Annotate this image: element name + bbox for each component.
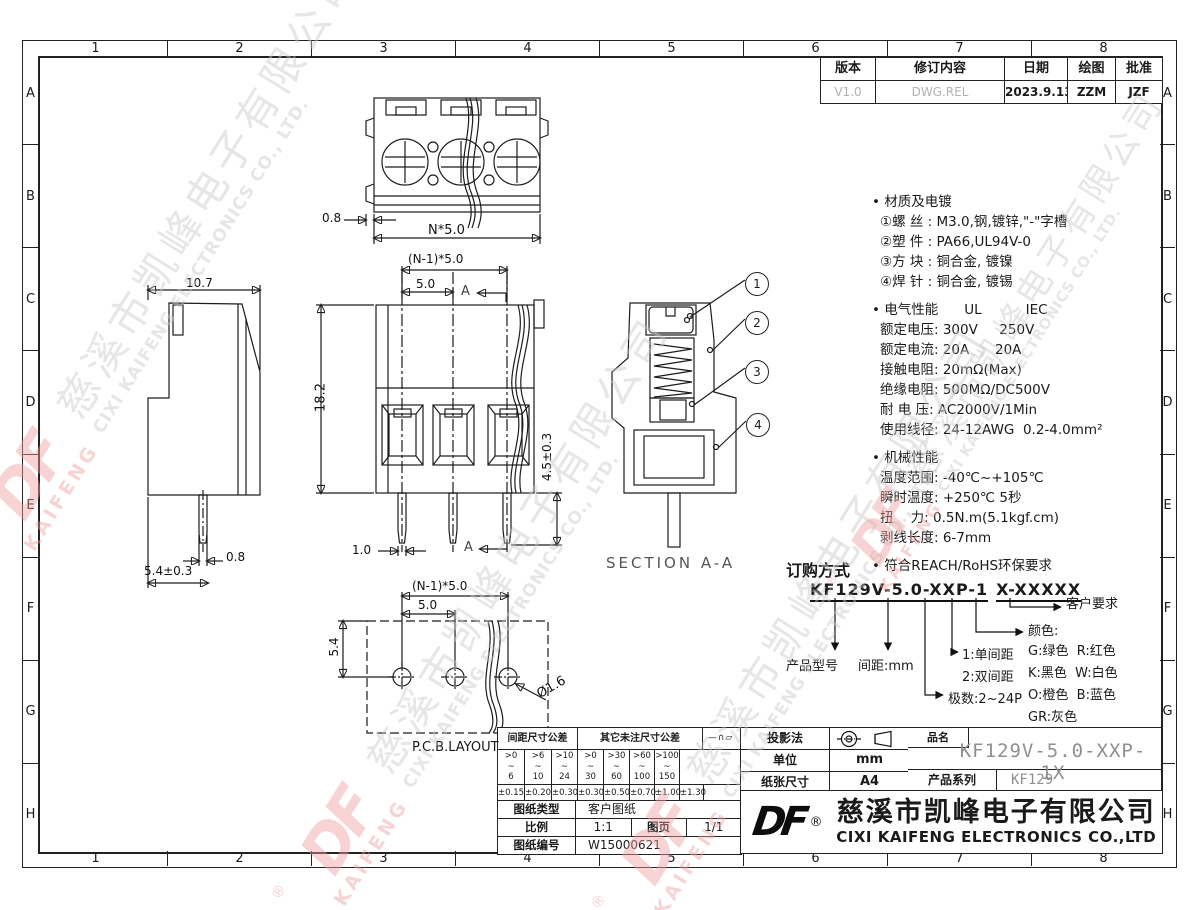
projection-row: 投影法 [741, 728, 909, 750]
registered-mark: ® [810, 815, 823, 830]
electrical-line: 绝缘电阻: 500MΩ/DC500V [872, 380, 1164, 400]
material-line: ④焊 针 : 铜合金, 镀锡 [872, 272, 1164, 292]
scale-value: 1:1 [576, 819, 632, 836]
unit-row: 单位 mm [741, 750, 909, 772]
pcb-layout-view [338, 592, 548, 733]
tolerance-range-cell: >0 ~ 30 [578, 750, 604, 784]
zone-row-label: G [1160, 661, 1175, 764]
electrical-line: 额定电压: 300V 250V [872, 320, 1164, 340]
zone-row-label: F [23, 558, 38, 661]
dim-pcb-edge: 5.4 [327, 633, 341, 661]
section-label: SECTION A-A [606, 554, 735, 572]
company-names: 慈溪市凯峰电子有限公司 CIXI KAIFENG ELECTRONICS CO.… [831, 798, 1162, 846]
drawing-type-value: 客户图纸 [576, 801, 741, 818]
revision-value-cell: ZZM [1068, 81, 1116, 103]
material-notes: 材质及电镀 ①螺 丝 : M3.0,钢,镀锌,"-"字槽②塑 件 : PA66,… [872, 192, 1164, 292]
revision-header-cell: 批准 [1116, 58, 1162, 80]
pitch-tolerance-header: 间距尺寸公差 [498, 728, 578, 749]
dim-front-pitch-total: (N-1)*5.0 [408, 252, 463, 266]
drawing-type-label: 图纸类型 [498, 801, 576, 818]
color-option-line: G:绿色 R:红色 [1028, 641, 1118, 663]
dim-side-depth: 10.7 [186, 276, 213, 290]
pcb-layout-label: P.C.B.LAYOUT [412, 740, 499, 755]
callout-balloon: 2 [745, 311, 769, 335]
material-line: ①螺 丝 : M3.0,钢,镀锌,"-"字槽 [872, 212, 1164, 232]
zone-row-label: B [23, 145, 38, 248]
compliance-note: 符合REACH/RoHS环保要求 [872, 556, 1164, 576]
other-tolerance-header: 其它未注尺寸公差 [578, 728, 703, 749]
geometry-symbols-header: —∩▱ [703, 728, 738, 749]
electrical-title-text: 电气性能 [884, 300, 938, 320]
kaifeng-logo: DF [750, 802, 806, 842]
revision-header-cell: 修订内容 [876, 58, 1005, 80]
zone-row-label: C [23, 248, 38, 351]
dim-pcb-pitch: 5.0 [418, 598, 437, 612]
drawing-views [40, 60, 780, 770]
zone-column-label: 4 [456, 41, 600, 56]
watermark-reg: ® [587, 891, 610, 910]
tolerance-range-cell: >30 ~ 60 [604, 750, 630, 784]
tolerance-value-cell: ±0.30 [578, 785, 604, 801]
zone-rows-left: ABCDEFGH [23, 42, 38, 866]
zone-row-label: E [23, 455, 38, 558]
scale-label: 比例 [498, 819, 576, 836]
zone-column-label: 1 [24, 851, 168, 866]
tolerance-value-cell: ±0.30 [552, 785, 578, 801]
dim-front-pitch: 5.0 [416, 277, 435, 291]
zone-row-label: A [23, 42, 38, 145]
tolerance-range-cell: >10 ~ 24 [552, 750, 578, 784]
electrical-line: 额定电流: 20A 20A [872, 340, 1164, 360]
ordering-model-label: 产品型号 [786, 655, 838, 674]
dim-top-pitch: N*5.0 [428, 223, 465, 238]
mechanical-line: 瞬时温度: +250℃ 5秒 [872, 488, 1164, 508]
zone-column-label: 3 [312, 851, 456, 866]
zone-column-label: 2 [168, 851, 312, 866]
front-view [316, 266, 562, 556]
tolerance-range-cell: >60 ~ 100 [630, 750, 655, 784]
unit-value: mm [830, 750, 909, 771]
electrical-notes: 电气性能ULIEC 额定电压: 300V 250V额定电流: 20A 20A接触… [872, 300, 1164, 440]
zone-column-label: 1 [24, 41, 168, 56]
ordering-poles-label: 极数:2~24P [948, 688, 1022, 707]
title-block-left: 投影法 单位 mm 纸张尺寸 A4 [740, 727, 910, 792]
ordering-title: 订购方式 [786, 557, 850, 581]
unit-label: 单位 [741, 750, 830, 771]
first-angle-projection-icon [835, 730, 905, 748]
callout-balloon: 4 [746, 413, 770, 437]
material-line: ③方 块 : 铜合金, 镀镍 [872, 252, 1164, 272]
dim-front-pin-length: 4.5±0.3 [540, 427, 554, 487]
page-label: 图页 [632, 819, 687, 836]
revision-value-cell: JZF [1116, 81, 1162, 103]
mechanical-title: 机械性能 [872, 448, 1164, 468]
projection-label: 投影法 [741, 728, 830, 749]
drawing-number-label: 图纸编号 [498, 837, 576, 854]
standard-ul: UL [964, 300, 981, 320]
tolerance-table-headers: 间距尺寸公差 其它未注尺寸公差 —∩▱ [498, 728, 741, 750]
dim-top-width: 0.8 [322, 211, 341, 225]
part-name-row: 品名 KF129V-5.0-XXP-1X [908, 728, 1161, 770]
side-view [148, 285, 260, 588]
revision-table-header: 版本修订内容日期绘图批准 [821, 58, 1162, 81]
zone-column-label: 3 [312, 41, 456, 56]
zone-row-label: D [23, 351, 38, 454]
mechanical-notes: 机械性能 温度范围: -40℃~+105℃瞬时温度: +250℃ 5秒扭 力: … [872, 448, 1164, 548]
tolerance-value-row: ±0.15±0.20±0.30±0.30±0.50±0.70±1.00±1.30 [498, 785, 741, 801]
company-name-en: CIXI KAIFENG ELECTRONICS CO.,LTD [831, 828, 1162, 846]
tolerance-range-row: >0 ~ 6>6 ~ 10>10 ~ 24>0 ~ 30>30 ~ 60>60 … [498, 750, 741, 785]
tolerance-value-cell: ±1.00 [655, 785, 680, 801]
section-view [612, 280, 746, 547]
tolerance-value-cell: ±0.15 [498, 785, 525, 801]
color-option-line: K:黑色 W:白色 [1028, 663, 1118, 685]
zone-column-label: 2 [168, 41, 312, 56]
tolerance-value-cell: ±0.70 [630, 785, 655, 801]
tolerance-value-cell: ±1.30 [680, 785, 704, 801]
revision-value-cell: DWG.REL [876, 81, 1005, 103]
mechanical-line: 扭 力: 0.5N.m(5.1kgf.cm) [872, 508, 1164, 528]
tolerance-range-cell: >100 ~ 150 [655, 750, 680, 784]
electrical-title: 电气性能ULIEC [872, 300, 1164, 320]
dim-front-pin-width: 1.0 [352, 543, 371, 557]
dim-front-height: 18.2 [314, 376, 329, 420]
mechanical-line: 剥线长度: 6-7mm [872, 528, 1164, 548]
scale-row: 比例 1:1 图页 1/1 [498, 819, 741, 837]
zone-column-label: 5 [600, 41, 744, 56]
projection-symbol-cell [830, 728, 909, 749]
material-title: 材质及电镀 [872, 192, 1164, 212]
title-block-right: 品名 KF129V-5.0-XXP-1X 产品系列 KF129 [908, 727, 1162, 792]
tolerance-range-cell: >0 ~ 6 [498, 750, 525, 784]
revision-value-cell: V1.0 [821, 81, 876, 103]
mechanical-line: 温度范围: -40℃~+105℃ [872, 468, 1164, 488]
revision-header-cell: 版本 [821, 58, 876, 80]
revision-value-cell: 2023.9.13 [1005, 81, 1068, 103]
revision-table-row: V1.0DWG.REL2023.9.13ZZMJZF [821, 81, 1162, 103]
zone-column-label: 6 [744, 41, 888, 56]
watermark-reg: ® [267, 881, 290, 903]
standard-iec: IEC [1026, 300, 1048, 320]
page-value: 1/1 [687, 819, 742, 836]
tolerance-table: 间距尺寸公差 其它未注尺寸公差 —∩▱ >0 ~ 6>6 ~ 10>10 ~ 2… [497, 727, 742, 802]
dim-pcb-pitch-total: (N-1)*5.0 [412, 579, 467, 593]
drawing-number-value: W15000621 [576, 837, 741, 854]
electrical-line: 耐 电 压: AC2000V/1Min [872, 400, 1164, 420]
electrical-line: 接触电阻: 20mΩ(Max) [872, 360, 1164, 380]
zone-column-label: 7 [888, 41, 1032, 56]
part-name-value: KF129V-5.0-XXP-1X [948, 740, 1158, 784]
zone-row-label: H [23, 764, 38, 866]
zone-row-label: G [23, 661, 38, 764]
material-line: ②塑 件 : PA66,UL94V-0 [872, 232, 1164, 252]
color-option-line: GR:灰色 [1028, 707, 1118, 729]
callout-balloon: 1 [745, 272, 769, 296]
drawing-type-row: 图纸类型 客户图纸 [498, 801, 741, 819]
drawing-sheet: 12345678 12345678 ABCDEFGH ABCDEFGH 版本修订… [0, 0, 1200, 910]
company-block: DF ® 慈溪市凯峰电子有限公司 CIXI KAIFENG ELECTRONIC… [740, 790, 1163, 854]
drawing-number-row: 图纸编号 W15000621 [498, 837, 741, 854]
tolerance-value-cell: ±0.20 [525, 785, 552, 801]
zone-column-label: 8 [1032, 41, 1175, 56]
ordering-single-row-label: 1:单间距 [962, 644, 1014, 663]
zone-columns-top: 12345678 [24, 41, 1175, 56]
color-option-line: O:橙色 B:蓝色 [1028, 685, 1118, 707]
ordering-pitch-label: 间距:mm [858, 655, 914, 674]
revision-table: 版本修订内容日期绘图批准 V1.0DWG.REL2023.9.13ZZMJZF [820, 57, 1163, 104]
dim-side-pin-length: 5.4±0.3 [144, 564, 192, 578]
company-name-cn: 慈溪市凯峰电子有限公司 [831, 798, 1162, 828]
tolerance-range-cell: >6 ~ 10 [525, 750, 552, 784]
ordering-color-label: 颜色: [1028, 620, 1058, 639]
revision-header-cell: 绘图 [1068, 58, 1116, 80]
section-mark-top: A [461, 284, 470, 299]
ordering-color-options: G:绿色 R:红色K:黑色 W:白色O:橙色 B:蓝色GR:灰色 [1028, 641, 1118, 729]
drawing-info-table: 图纸类型 客户图纸 比例 1:1 图页 1/1 图纸编号 W15000621 [497, 800, 742, 855]
revision-header-cell: 日期 [1005, 58, 1068, 80]
electrical-line: 使用线径: 24-12AWG 0.2-4.0mm² [872, 420, 1164, 440]
callout-balloon: 3 [745, 360, 769, 384]
section-mark-bottom: A [464, 540, 473, 555]
ordering-double-row-label: 2:双间距 [962, 666, 1014, 685]
spec-notes: 材质及电镀 ①螺 丝 : M3.0,钢,镀锌,"-"字槽②塑 件 : PA66,… [872, 192, 1164, 576]
tolerance-value-cell: ±0.50 [604, 785, 630, 801]
dim-side-pin-width: 0.8 [226, 550, 245, 564]
ordering-customer-label: 客户要求 [1066, 593, 1118, 612]
